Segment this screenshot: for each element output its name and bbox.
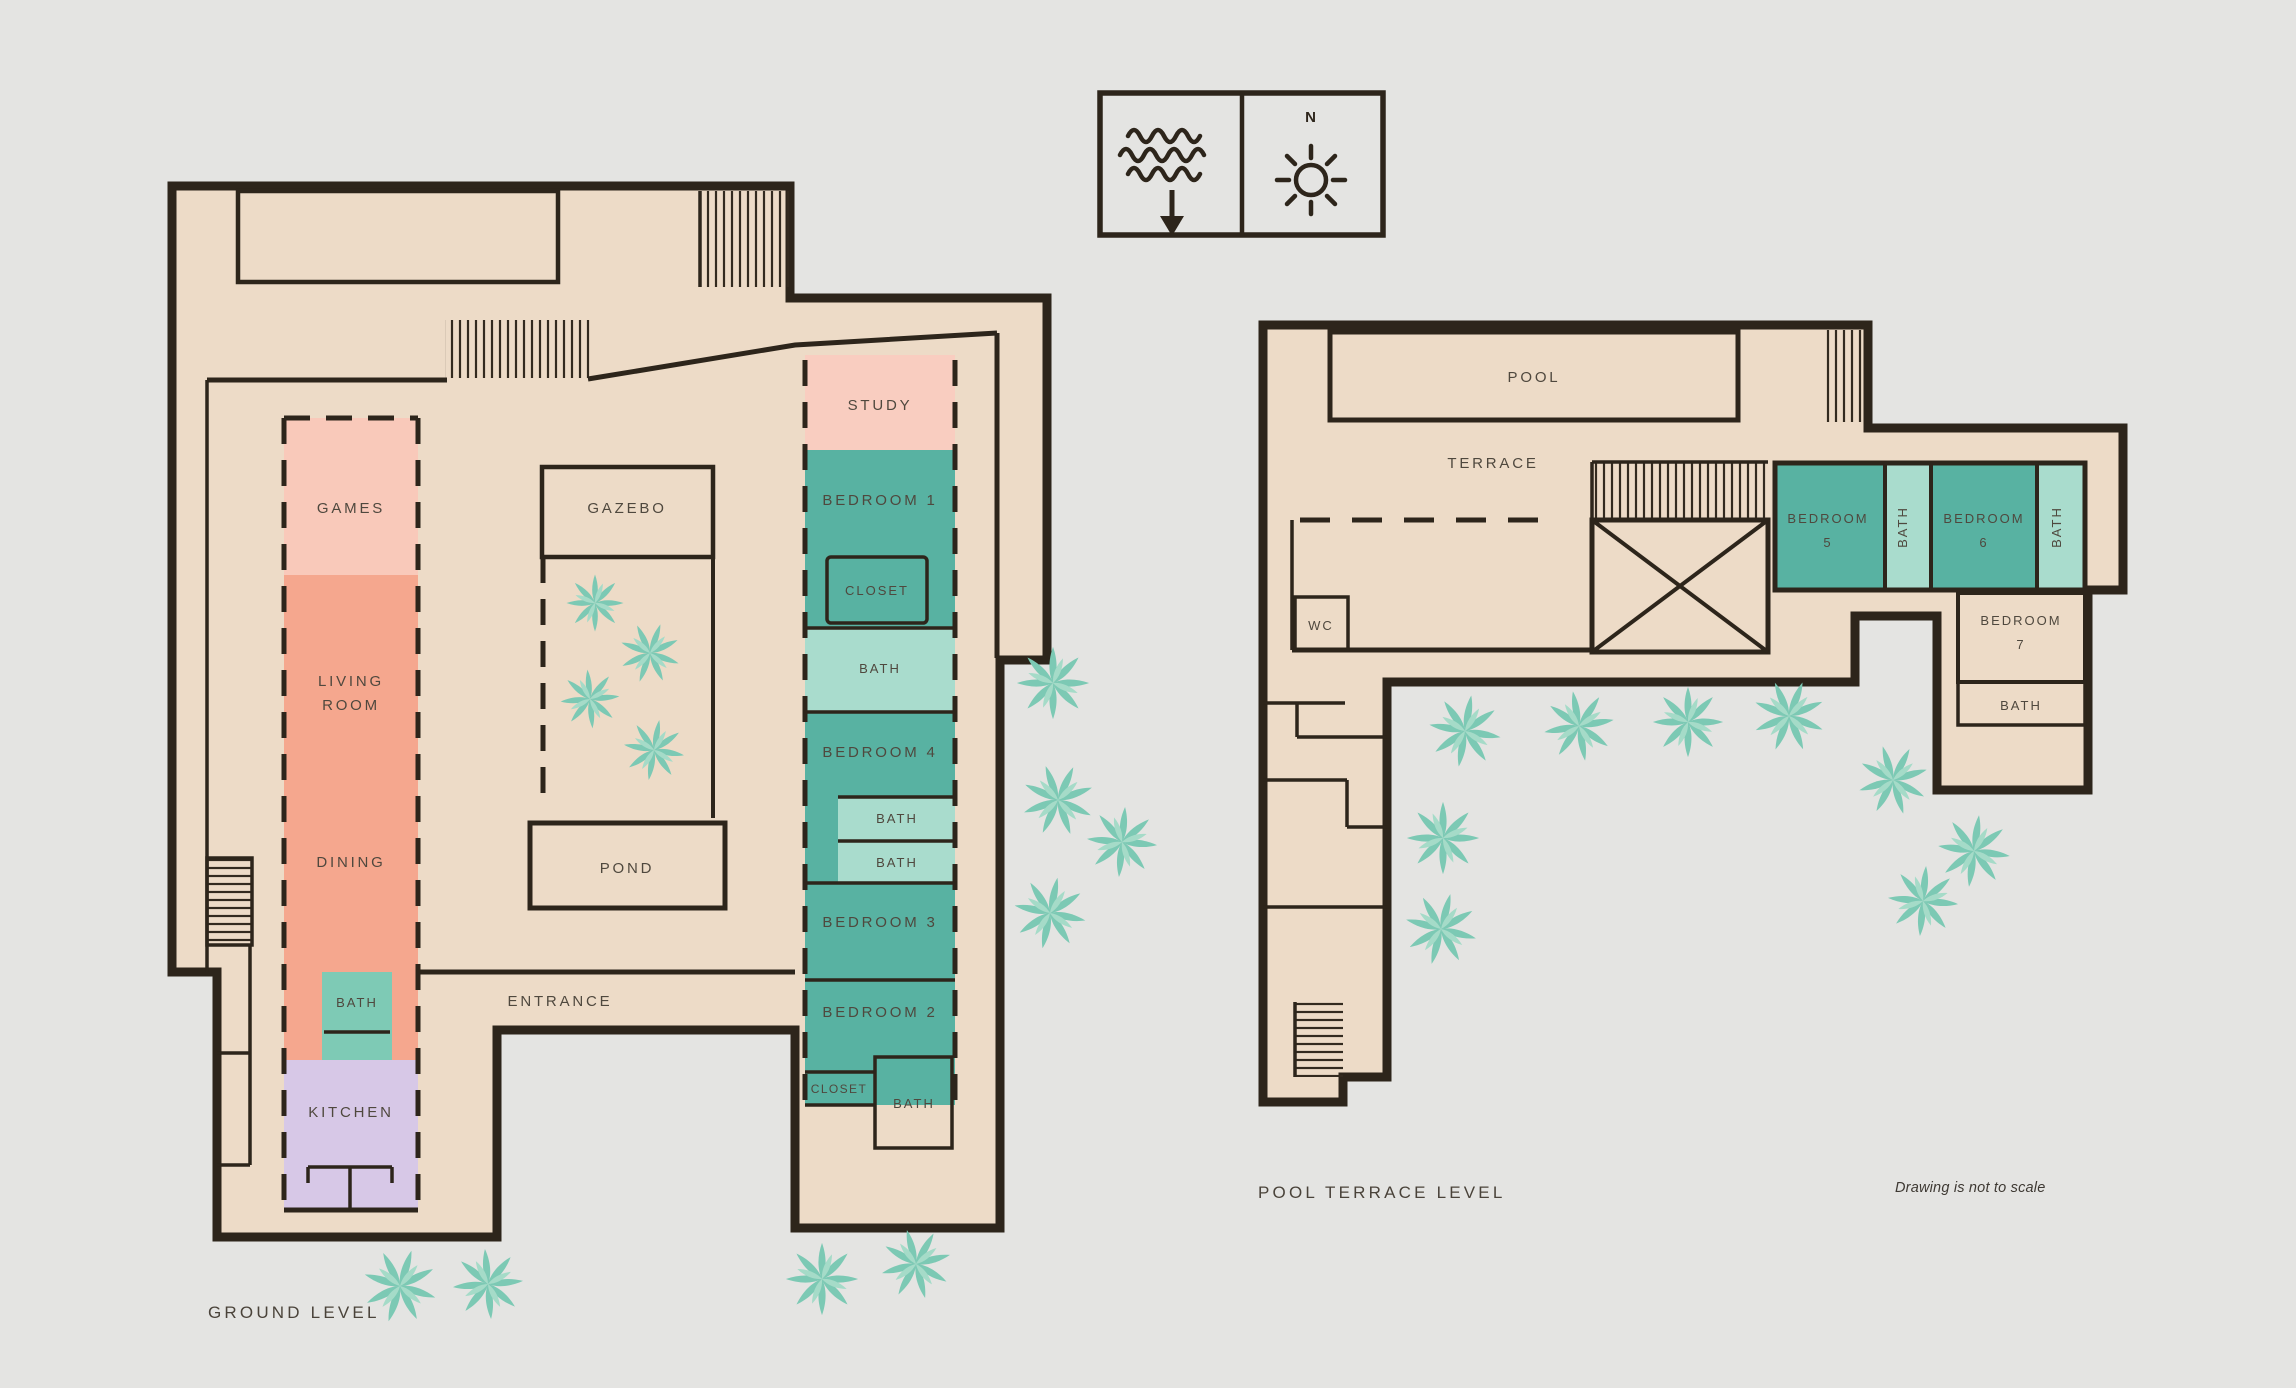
ground-level-title: GROUND LEVEL (208, 1303, 380, 1322)
room-bath-main (322, 972, 392, 1060)
room-bedroom5-label-2: 5 (1823, 535, 1832, 550)
plant-icon (1845, 732, 1940, 827)
entrance-label: ENTRANCE (508, 993, 613, 1010)
plant-icon (1653, 687, 1723, 757)
room-bath4a-label: BATH (876, 811, 918, 826)
plant-icon (567, 575, 624, 632)
room-bedroom6-label-2: 6 (1979, 535, 1988, 550)
room-bedroom7-label-1: BEDROOM (1980, 613, 2061, 628)
stairs-courtyard (445, 320, 590, 378)
closet1-label: CLOSET (845, 583, 909, 598)
pool-label: POOL (1508, 369, 1561, 386)
plant-icon (1933, 810, 2015, 892)
room-bedroom7-label-2: 7 (2016, 637, 2025, 652)
plant-icon (438, 1234, 537, 1333)
room-bedroom6 (1931, 463, 2037, 590)
down-arrow-icon (1160, 190, 1184, 236)
room-bath1-label: BATH (859, 661, 901, 676)
plant-icon (1072, 792, 1171, 891)
plant-icon (1392, 787, 1494, 889)
room-bedroom4-label: BEDROOM 4 (822, 744, 937, 761)
room-games-label: GAMES (317, 500, 385, 517)
room-bedroom5-label-1: BEDROOM (1787, 511, 1868, 526)
stairs-top-right (700, 191, 790, 287)
room-bath7-label: BATH (2000, 698, 2042, 713)
room-bedroom1-label: BEDROOM 1 (822, 492, 937, 509)
scale-disclaimer: Drawing is not to scale (1895, 1180, 2045, 1196)
sun-icon (1277, 146, 1345, 214)
plant-icon (1397, 885, 1485, 973)
plant-icon (1530, 677, 1628, 775)
stairs-left (207, 858, 252, 945)
plant-icon (1010, 752, 1106, 848)
stairs-pool-mid (1592, 462, 1768, 520)
plant-icon (1007, 870, 1093, 956)
stairs-pool-top-right (1823, 330, 1865, 422)
floor-plan-canvas: GAMES LIVING ROOM DINING BATH KITCHEN GA… (0, 0, 2296, 1388)
waves-icon (1120, 130, 1204, 180)
pond-label: POND (600, 860, 655, 877)
room-gazebo-label: GAZEBO (587, 500, 666, 517)
stairs-pool-bottom-left (1295, 1002, 1343, 1077)
room-bath4b-label: BATH (876, 855, 918, 870)
room-bath6-label: BATH (2049, 506, 2064, 548)
pool-terrace-level-plan: POOL TERRACE WC BEDROOM 5 BATH BEDROOM 6… (1258, 325, 2123, 1202)
room-bath2-label: BATH (893, 1096, 935, 1111)
ground-level-plan: GAMES LIVING ROOM DINING BATH KITCHEN GA… (172, 186, 1047, 1322)
room-bath-main-label: BATH (336, 995, 378, 1010)
plant-icon (1423, 689, 1507, 773)
legend-box: N (1100, 93, 1383, 236)
room-bedroom3-label: BEDROOM 3 (822, 914, 937, 931)
closet2-label: CLOSET (811, 1082, 867, 1096)
pool-level-title: POOL TERRACE LEVEL (1258, 1183, 1506, 1202)
plant-icon (1017, 647, 1089, 719)
room-living-label-2: ROOM (322, 697, 380, 714)
room-wc-label: WC (1308, 618, 1334, 633)
room-bedroom5 (1775, 463, 1885, 590)
plant-icon (786, 1243, 858, 1315)
room-living-label-1: LIVING (318, 673, 384, 690)
terrace-label: TERRACE (1447, 455, 1538, 472)
room-bedroom6-label-1: BEDROOM (1943, 511, 2024, 526)
room-dining-label: DINING (316, 854, 385, 871)
room-study-label: STUDY (848, 397, 913, 414)
room-kitchen-label: KITCHEN (308, 1104, 393, 1121)
room-games (284, 418, 418, 575)
room-bath5-label: BATH (1895, 506, 1910, 548)
room-bedroom2-label: BEDROOM 2 (822, 1004, 937, 1021)
north-label: N (1305, 109, 1317, 126)
